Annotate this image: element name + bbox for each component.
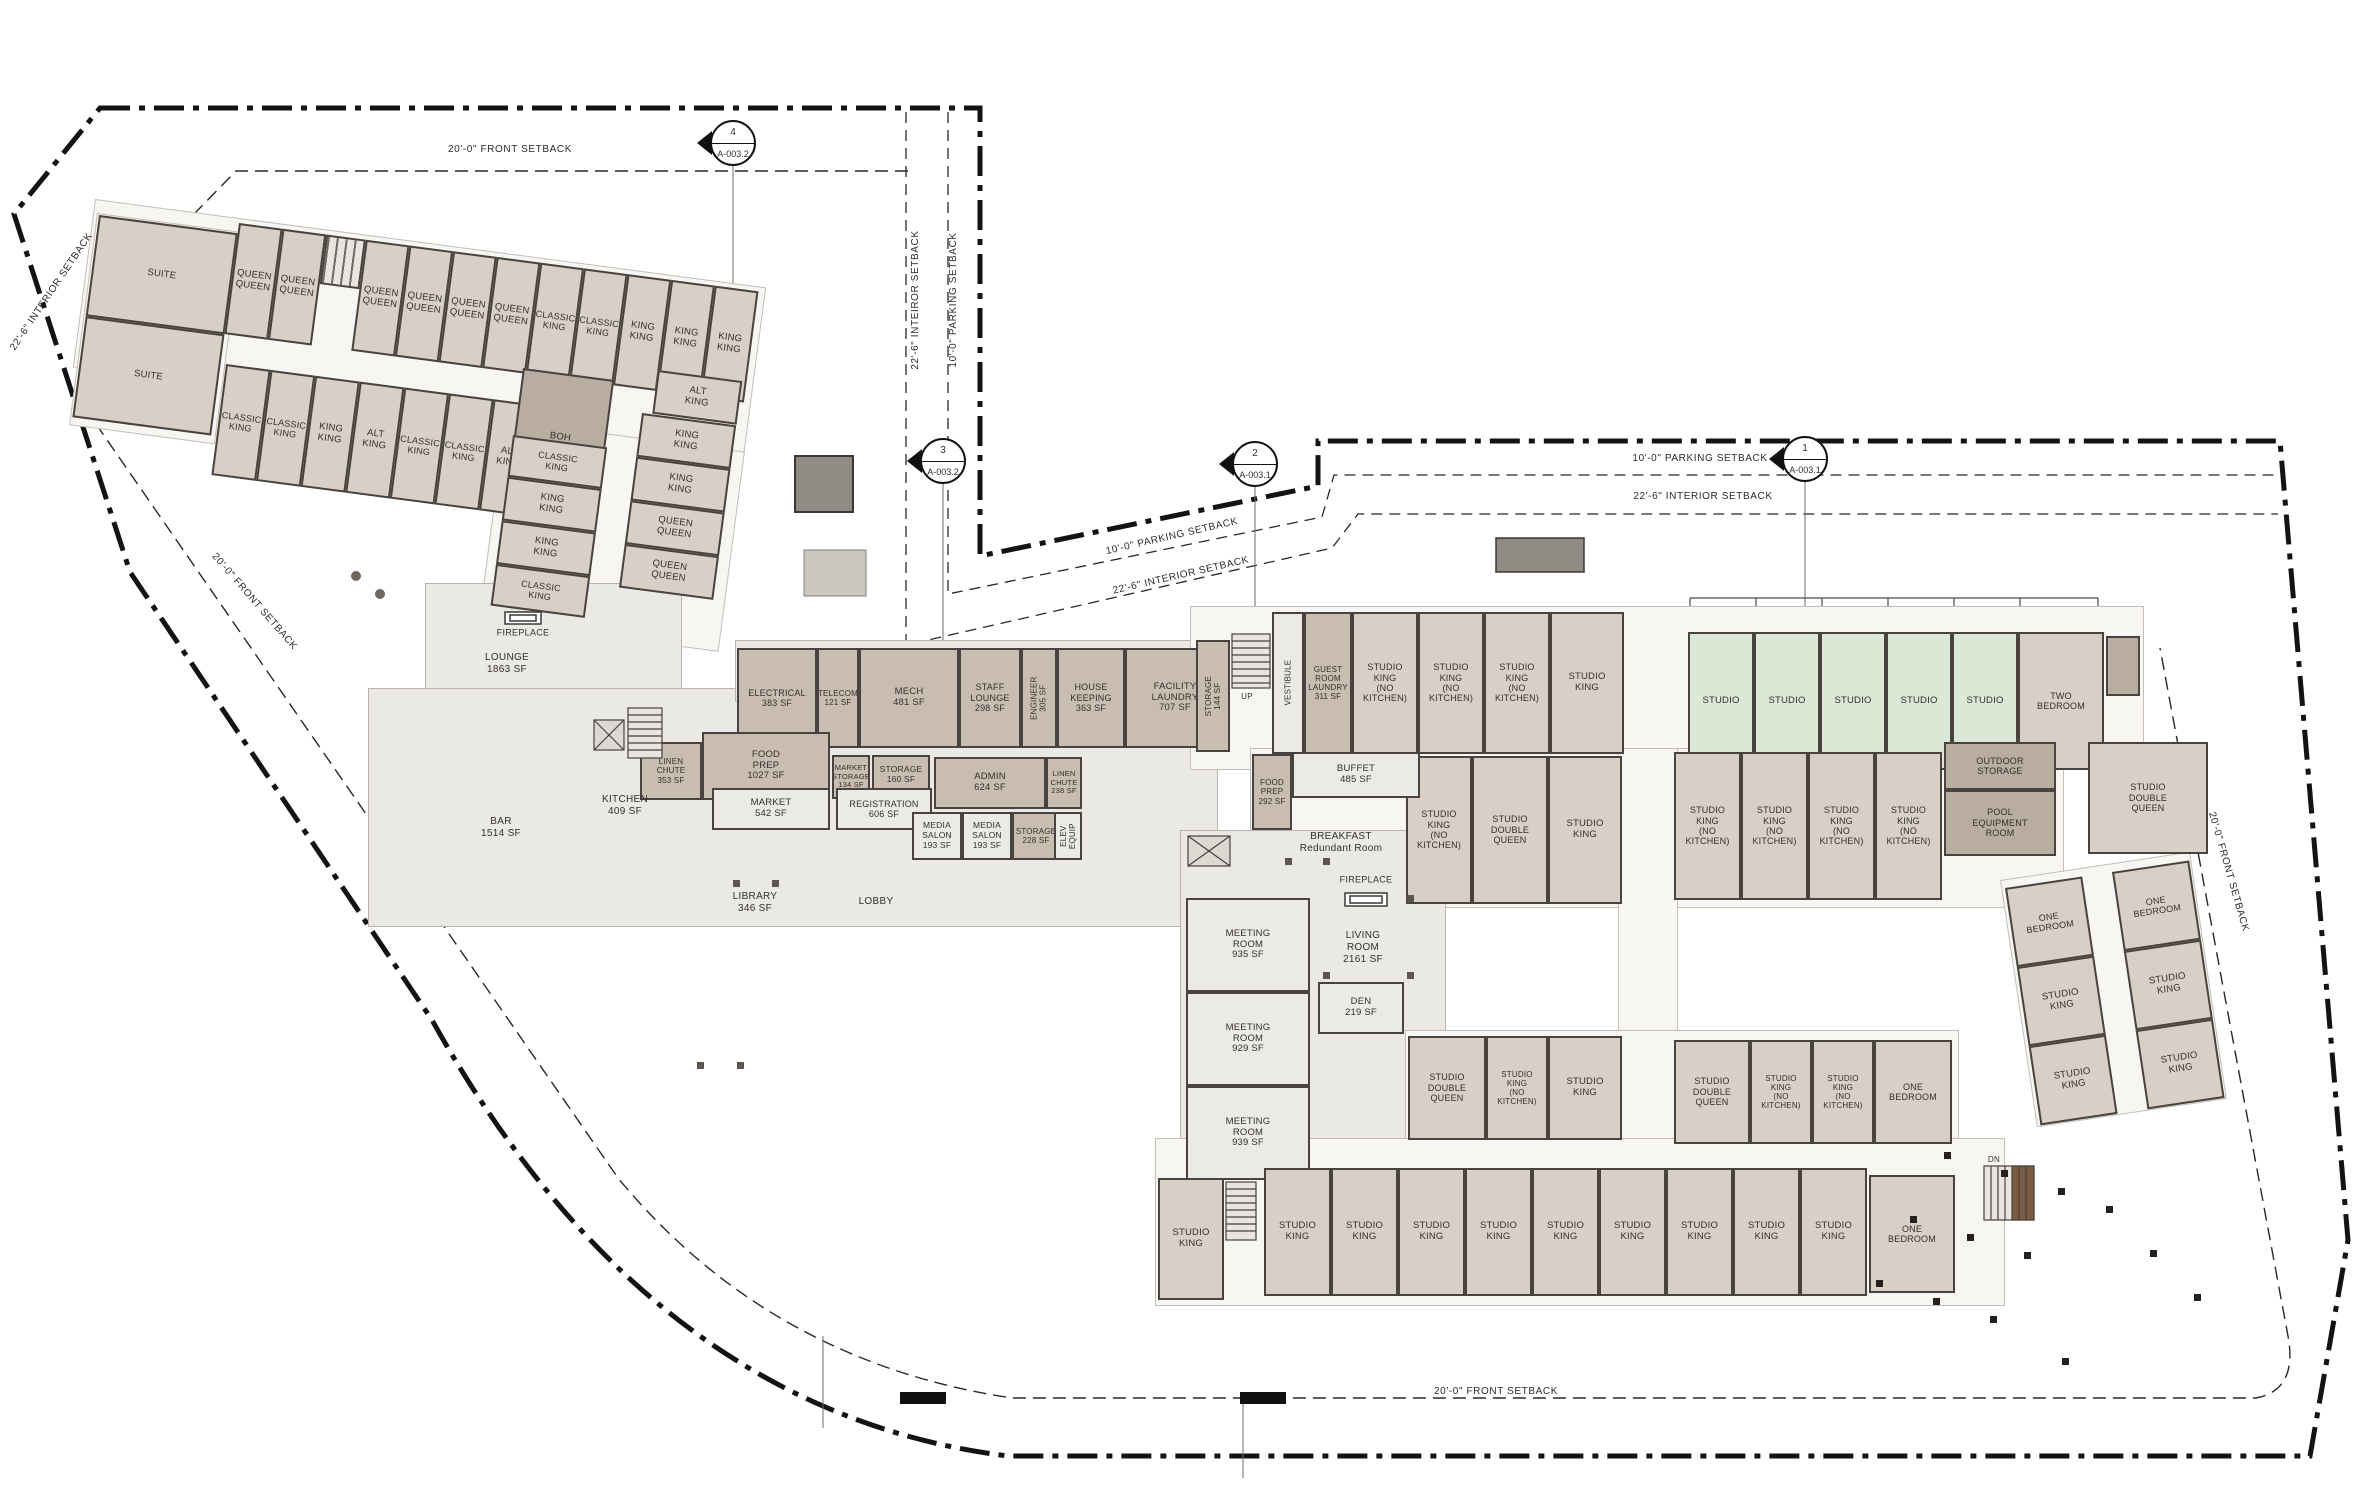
room-label: QUEEN QUEEN bbox=[405, 291, 442, 317]
room: MECH 481 SF bbox=[859, 648, 959, 748]
room-label: STUDIO bbox=[1768, 696, 1805, 707]
room-label: SUITE bbox=[133, 369, 163, 384]
room-label: STUDIO KING bbox=[1566, 819, 1603, 841]
room: POOL EQUIPMENT ROOM bbox=[1944, 790, 2056, 856]
section-marker-circle: 4A-003.2 bbox=[710, 120, 756, 166]
room-label: ALT KING bbox=[684, 385, 711, 410]
room-label: ENGINEER 305 SF bbox=[1030, 676, 1048, 719]
room-label: STUDIO KING (NO KITCHEN) bbox=[1752, 805, 1796, 846]
room-label: STUDIO KING bbox=[1566, 1077, 1603, 1099]
market: MARKET 542 SF bbox=[712, 788, 830, 830]
room-label: STUDIO KING (NO KITCHEN) bbox=[1819, 805, 1863, 846]
room: STUDIO KING (NO KITCHEN) bbox=[1808, 752, 1875, 900]
plan-label: DN bbox=[1988, 1155, 2000, 1165]
room: STUDIO KING (NO KITCHEN) bbox=[1674, 752, 1741, 900]
room bbox=[2106, 636, 2140, 696]
room-label: FACILITY LAUNDRY 707 SF bbox=[1152, 682, 1199, 715]
setback-label: 20'-0" FRONT SETBACK bbox=[2205, 811, 2251, 933]
room-label: VESTIBULE bbox=[1283, 660, 1292, 706]
room-label: REGISTRATION 606 SF bbox=[849, 799, 918, 820]
room: GUEST ROOM LAUNDRY 311 SF bbox=[1304, 612, 1352, 754]
room: STUDIO KING bbox=[1666, 1168, 1733, 1296]
room-label: CLASSIC KING bbox=[264, 415, 306, 441]
room: STUDIO KING (NO KITCHEN) bbox=[1486, 1036, 1548, 1140]
plan-label: FIREPLACE bbox=[497, 628, 550, 639]
room: STUDIO KING (NO KITCHEN) bbox=[1484, 612, 1550, 754]
setback-label: 20'-0" FRONT SETBACK bbox=[209, 551, 299, 652]
room-label: QUEEN QUEEN bbox=[656, 515, 693, 541]
room-label: KING KING bbox=[629, 320, 656, 345]
room: BUFFET 485 SF bbox=[1292, 752, 1420, 798]
room-label: KING KING bbox=[317, 422, 344, 447]
room-label: STORAGE 160 SF bbox=[880, 765, 923, 785]
room-label: KING KING bbox=[716, 332, 743, 357]
room-label: QUEEN QUEEN bbox=[650, 559, 687, 585]
plan-label: LOBBY bbox=[859, 896, 894, 908]
room-label: STUDIO bbox=[1966, 696, 2003, 707]
room-label: CLASSIC KING bbox=[220, 410, 262, 436]
room: STUDIO KING bbox=[1550, 612, 1624, 754]
section-marker: 2A-003.1 bbox=[1232, 441, 1278, 487]
room: STUDIO KING bbox=[1158, 1178, 1224, 1300]
room-label: STUDIO KING bbox=[2041, 987, 2081, 1014]
utility-column: OUTDOOR STORAGEPOOL EQUIPMENT ROOM bbox=[1944, 742, 2056, 856]
room: STORAGE 144 SF bbox=[1196, 640, 1230, 752]
room: STUDIO KING bbox=[1465, 1168, 1532, 1296]
setback-label: 22'-6" INTEIROR SETBACK bbox=[910, 230, 922, 369]
room-label: CLASSIC KING bbox=[398, 433, 440, 459]
room: HOUSE KEEPING 363 SF bbox=[1057, 648, 1125, 748]
room: STUDIO KING (NO KITCHEN) bbox=[1741, 752, 1808, 900]
room-label: FOOD PREP 1027 SF bbox=[747, 750, 784, 783]
wing-b-row: VESTIBULEGUEST ROOM LAUNDRY 311 SFSTUDIO… bbox=[1272, 612, 1624, 754]
room: STUDIO KING bbox=[1532, 1168, 1599, 1296]
room: STUDIO KING bbox=[1398, 1168, 1465, 1296]
section-leader-lines bbox=[733, 163, 1805, 642]
room: STUDIO KING bbox=[1800, 1168, 1867, 1296]
room: ADMIN 624 SF bbox=[934, 757, 1046, 809]
room-label: QUEEN QUEEN bbox=[449, 296, 486, 322]
room: STUDIO KING (NO KITCHEN) bbox=[1750, 1040, 1812, 1144]
section-number: 4 bbox=[712, 122, 754, 143]
plan-label: BAR 1514 SF bbox=[481, 816, 521, 840]
room-label: POOL EQUIPMENT ROOM bbox=[1972, 807, 2027, 838]
room-label: ONE BEDROOM bbox=[1888, 1224, 1936, 1245]
wing-a-suites: SUITESUITE bbox=[72, 215, 237, 436]
plan-label: FIREPLACE bbox=[1340, 875, 1393, 886]
room-label: STUDIO KING (NO KITCHEN) bbox=[1417, 809, 1461, 850]
bottom-lower-first: STUDIO KING bbox=[1158, 1178, 1224, 1300]
section-marker: 1A-003.1 bbox=[1782, 436, 1828, 482]
room-label: STUDIO KING bbox=[1547, 1221, 1584, 1243]
room-label: MEDIA SALON 193 SF bbox=[972, 821, 1002, 850]
section-marker-circle: 1A-003.1 bbox=[1782, 436, 1828, 482]
wing-c-row-right: STUDIO KING (NO KITCHEN)STUDIO KING (NO … bbox=[1674, 752, 1942, 900]
room-label: CLASSIC KING bbox=[519, 578, 561, 604]
room-label: MEETING ROOM 935 SF bbox=[1226, 929, 1271, 962]
plan-label: BREAKFAST Redundant Room bbox=[1300, 831, 1383, 855]
media-salon-1: MEDIA SALON 193 SF bbox=[912, 812, 962, 860]
room-label: TELECOM 121 SF bbox=[818, 689, 858, 707]
media-salon-2: MEDIA SALON 193 SF bbox=[962, 812, 1012, 860]
room-label: KING KING bbox=[667, 472, 694, 497]
green-row-elevator bbox=[2106, 636, 2140, 696]
room-label: KING KING bbox=[538, 492, 565, 517]
room: MEETING ROOM 939 SF bbox=[1186, 1086, 1310, 1180]
room-label: ALT KING bbox=[362, 428, 389, 453]
room-label: KING KING bbox=[673, 429, 700, 454]
room: ONE BEDROOM bbox=[1869, 1175, 1955, 1293]
room-label: SUITE bbox=[147, 267, 177, 282]
setback-label: 20'-0" FRONT SETBACK bbox=[1434, 1386, 1558, 1398]
one-bedroom-bottom: ONE BEDROOM bbox=[1869, 1175, 1955, 1293]
section-marker-circle: 2A-003.1 bbox=[1232, 441, 1278, 487]
room: STUDIO KING bbox=[1264, 1168, 1331, 1296]
section-marker: 4A-003.2 bbox=[710, 120, 756, 166]
room: LINEN CHUTE 238 SF bbox=[1046, 757, 1082, 809]
room-label: STUDIO KING (NO KITCHEN) bbox=[1761, 1074, 1800, 1111]
room-label: STUDIO KING bbox=[2160, 1050, 2200, 1077]
room-label: DEN 219 SF bbox=[1345, 997, 1377, 1019]
room: STUDIO KING bbox=[1331, 1168, 1398, 1296]
room-label: STUDIO bbox=[1834, 696, 1871, 707]
room-label: LINEN CHUTE 238 SF bbox=[1051, 770, 1078, 796]
site-tick-lines bbox=[823, 1336, 1243, 1478]
room-label: STUDIO KING bbox=[1480, 1221, 1517, 1243]
parking-setback-line bbox=[948, 112, 2278, 594]
room-label: STUDIO bbox=[1702, 696, 1739, 707]
room-label: STUDIO KING bbox=[1172, 1228, 1209, 1250]
room: STUDIO bbox=[1820, 632, 1886, 770]
buffet: BUFFET 485 SF bbox=[1292, 752, 1420, 798]
room: STUDIO KING bbox=[1599, 1168, 1666, 1296]
room-label: OUTDOOR STORAGE bbox=[1976, 756, 2023, 777]
room-label: QUEEN QUEEN bbox=[362, 285, 399, 311]
room: ONE BEDROOM bbox=[1874, 1040, 1952, 1144]
room-label: STUDIO KING (NO KITCHEN) bbox=[1363, 662, 1407, 703]
room-label: MARKET STORAGE 134 SF bbox=[832, 764, 870, 790]
room-label: STUDIO KING bbox=[1413, 1221, 1450, 1243]
room-label: STUDIO KING (NO KITCHEN) bbox=[1886, 805, 1930, 846]
room-label: STUDIO KING (NO KITCHEN) bbox=[1685, 805, 1729, 846]
linen-chute-238: LINEN CHUTE 238 SF bbox=[1046, 757, 1082, 809]
room: STORAGE 228 SF bbox=[1012, 812, 1060, 860]
section-number: 1 bbox=[1784, 438, 1826, 459]
room-label: ONE BEDROOM bbox=[1889, 1082, 1937, 1103]
room: LINEN CHUTE 353 SF bbox=[640, 742, 702, 800]
room: STUDIO bbox=[1688, 632, 1754, 770]
section-marker: 3A-003.2 bbox=[920, 438, 966, 484]
den: DEN 219 SF bbox=[1318, 982, 1404, 1034]
room: STUDIO DOUBLE QUEEN bbox=[1408, 1036, 1486, 1140]
bottom-lower-row: STUDIO KINGSTUDIO KINGSTUDIO KINGSTUDIO … bbox=[1264, 1168, 1867, 1296]
room: SUITE bbox=[72, 316, 224, 435]
room-label: ADMIN 624 SF bbox=[974, 772, 1006, 794]
room-label: LINEN CHUTE 353 SF bbox=[657, 757, 686, 785]
room: STUDIO KING (NO KITCHEN) bbox=[1875, 752, 1942, 900]
setback-label: 10'-0" PARKING SETBACK bbox=[948, 232, 960, 367]
room: STUDIO KING bbox=[1548, 1036, 1622, 1140]
room-label: ELEV EQUIP bbox=[1059, 823, 1077, 849]
room: MEDIA SALON 193 SF bbox=[962, 812, 1012, 860]
linen-chute-353: LINEN CHUTE 353 SF bbox=[640, 742, 702, 800]
section-number: 2 bbox=[1234, 443, 1276, 464]
room: FOOD PREP 292 SF bbox=[1252, 754, 1292, 830]
storage-228: STORAGE 228 SF bbox=[1012, 812, 1060, 860]
room: STUDIO KING bbox=[2136, 1019, 2225, 1110]
setback-label: 10'-0" PARKING SETBACK bbox=[1105, 516, 1239, 558]
section-number: 3 bbox=[922, 440, 964, 461]
room-label: QUEEN QUEEN bbox=[235, 268, 272, 294]
room-label: CLASSIC KING bbox=[577, 314, 619, 340]
room: STUDIO KING bbox=[2124, 940, 2213, 1031]
room-label: STAFF LOUNGE 298 SF bbox=[970, 682, 1009, 713]
room-label: STUDIO KING bbox=[1346, 1221, 1383, 1243]
room-label: STUDIO DOUBLE QUEEN bbox=[1428, 1072, 1466, 1103]
room-label: STUDIO KING bbox=[1614, 1221, 1651, 1243]
room-label: CLASSIC KING bbox=[536, 449, 578, 475]
room: ELEV EQUIP bbox=[1054, 812, 1082, 860]
bottom-upper-right: STUDIO DOUBLE QUEENSTUDIO KING (NO KITCH… bbox=[1674, 1040, 1952, 1144]
room-label: STORAGE 144 SF bbox=[1204, 676, 1222, 716]
room: STUDIO DOUBLE QUEEN bbox=[1674, 1040, 1750, 1144]
room: STUDIO KING (NO KITCHEN) bbox=[1352, 612, 1418, 754]
room-label: TWO BEDROOM bbox=[2037, 691, 2085, 712]
room-label: MEETING ROOM 929 SF bbox=[1226, 1023, 1271, 1056]
room: STUDIO DOUBLE QUEEN bbox=[2088, 742, 2208, 854]
room-label: STUDIO KING (NO KITCHEN) bbox=[1429, 662, 1473, 703]
plan-label: LIBRARY 346 SF bbox=[733, 891, 778, 915]
storage-144: STORAGE 144 SF bbox=[1196, 640, 1230, 752]
plan-label: KITCHEN 409 SF bbox=[602, 794, 648, 818]
room: STUDIO KING (NO KITCHEN) bbox=[1812, 1040, 1874, 1144]
room-label: STUDIO DOUBLE QUEEN bbox=[1693, 1076, 1731, 1107]
room: STUDIO KING (NO KITCHEN) bbox=[1418, 612, 1484, 754]
room: STAFF LOUNGE 298 SF bbox=[959, 648, 1021, 748]
room-label: STUDIO KING bbox=[2148, 971, 2188, 998]
room: OUTDOOR STORAGE bbox=[1944, 742, 2056, 790]
room: STUDIO KING bbox=[1733, 1168, 1800, 1296]
room-label: MEDIA SALON 193 SF bbox=[922, 821, 952, 850]
room: MARKET 542 SF bbox=[712, 788, 830, 830]
room-label: HOUSE KEEPING 363 SF bbox=[1070, 682, 1111, 713]
room: ONE BEDROOM bbox=[2005, 876, 2094, 967]
interior-setback-line bbox=[906, 112, 2278, 645]
room-label: KING KING bbox=[533, 536, 560, 561]
room-label: KING KING bbox=[672, 326, 699, 351]
admin: ADMIN 624 SF bbox=[934, 757, 1046, 809]
section-sheet: A-003.2 bbox=[712, 143, 754, 165]
room-label: STUDIO KING bbox=[1279, 1221, 1316, 1243]
room: STUDIO KING bbox=[2029, 1035, 2118, 1126]
room: MEDIA SALON 193 SF bbox=[912, 812, 962, 860]
room: STUDIO KING bbox=[1548, 756, 1622, 904]
room-label: STUDIO KING bbox=[1568, 672, 1605, 694]
room-label: STUDIO KING bbox=[1681, 1221, 1718, 1243]
room-label: CLASSIC KING bbox=[443, 439, 485, 465]
studio-double-queen-detached: STUDIO DOUBLE QUEEN bbox=[2088, 742, 2208, 854]
room: VESTIBULE bbox=[1272, 612, 1304, 754]
section-sheet: A-003.2 bbox=[922, 461, 964, 483]
room-label: ONE BEDROOM bbox=[2024, 908, 2074, 936]
room bbox=[320, 234, 366, 289]
room-label: ELECTRICAL 383 SF bbox=[748, 688, 806, 709]
room: SUITE bbox=[86, 215, 238, 334]
room-label: BUFFET 485 SF bbox=[1337, 764, 1375, 786]
food-prep-292: FOOD PREP 292 SF bbox=[1252, 754, 1292, 830]
room: ENGINEER 305 SF bbox=[1021, 648, 1057, 748]
room-label: STORAGE 228 SF bbox=[1016, 827, 1056, 845]
room-label: MARKET 542 SF bbox=[751, 798, 792, 820]
room: STUDIO bbox=[1754, 632, 1820, 770]
bottom-upper-left: STUDIO DOUBLE QUEENSTUDIO KING (NO KITCH… bbox=[1408, 1036, 1622, 1140]
room-label: MEETING ROOM 939 SF bbox=[1226, 1117, 1271, 1150]
room-label: STUDIO KING bbox=[1748, 1221, 1785, 1243]
crosswalk-marks bbox=[900, 1392, 1286, 1404]
landscape-dots bbox=[351, 571, 385, 599]
section-sheet: A-003.1 bbox=[1784, 459, 1826, 481]
plan-label: LOUNGE 1863 SF bbox=[485, 652, 529, 676]
room-label: FOOD PREP 292 SF bbox=[1259, 778, 1286, 806]
room: ONE BEDROOM bbox=[2112, 860, 2201, 951]
room-label: STUDIO DOUBLE QUEEN bbox=[2129, 782, 2167, 813]
room-label: GUEST ROOM LAUNDRY 311 SF bbox=[1308, 665, 1348, 702]
wing-c-row-left: STUDIO KING (NO KITCHEN)STUDIO DOUBLE QU… bbox=[1406, 756, 1622, 904]
room-label: MECH 481 SF bbox=[893, 687, 925, 709]
plan-label: UP bbox=[1241, 692, 1253, 702]
room: STUDIO DOUBLE QUEEN bbox=[1472, 756, 1548, 904]
section-marker-circle: 3A-003.2 bbox=[920, 438, 966, 484]
room-label: STUDIO DOUBLE QUEEN bbox=[1491, 814, 1529, 845]
floor-plan-sheet: SUITESUITEQUEEN QUEENQUEEN QUEENQUEEN QU… bbox=[0, 0, 2380, 1510]
setback-label: 22'-6" INTERIOR SETBACK bbox=[1633, 491, 1772, 503]
setback-label: 10'-0" PARKING SETBACK bbox=[1632, 453, 1767, 465]
room-label: STUDIO KING (NO KITCHEN) bbox=[1497, 1070, 1536, 1107]
room-label: QUEEN QUEEN bbox=[278, 274, 315, 300]
room-label: QUEEN QUEEN bbox=[493, 302, 530, 328]
setback-label: 22'-6" INTERIOR SETBACK bbox=[1112, 554, 1250, 597]
room: MEETING ROOM 935 SF bbox=[1186, 898, 1310, 992]
room-label: ONE BEDROOM bbox=[2131, 892, 2181, 920]
room-label: STUDIO KING (NO KITCHEN) bbox=[1823, 1074, 1862, 1111]
plan-label: LIVING ROOM 2161 SF bbox=[1343, 930, 1383, 966]
room-label: STUDIO KING bbox=[1815, 1221, 1852, 1243]
room: STUDIO bbox=[1886, 632, 1952, 770]
room-label: STUDIO bbox=[1900, 696, 1937, 707]
room-label: STUDIO KING bbox=[2053, 1066, 2093, 1093]
room: STUDIO KING bbox=[2017, 956, 2106, 1047]
meeting-column: MEETING ROOM 935 SFMEETING ROOM 929 SFME… bbox=[1186, 898, 1310, 1180]
room-label: STUDIO KING (NO KITCHEN) bbox=[1495, 662, 1539, 703]
setback-label: 20'-0" FRONT SETBACK bbox=[448, 144, 572, 156]
room: DEN 219 SF bbox=[1318, 982, 1404, 1034]
section-sheet: A-003.1 bbox=[1234, 464, 1276, 486]
room: MEETING ROOM 929 SF bbox=[1186, 992, 1310, 1086]
room-label: CLASSIC KING bbox=[534, 308, 576, 334]
elev-equip: ELEV EQUIP bbox=[1054, 812, 1082, 860]
